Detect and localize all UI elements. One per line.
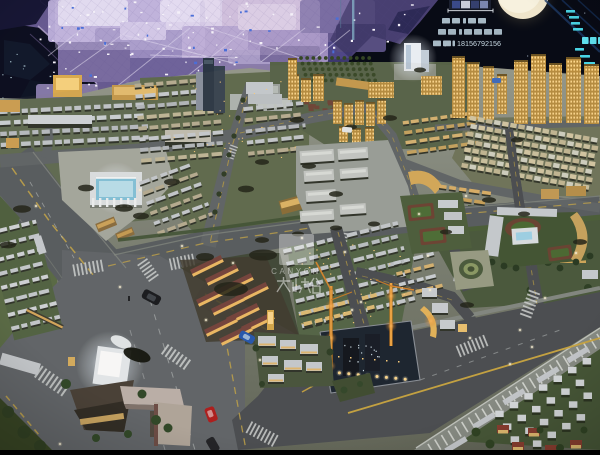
svg-text:CANYON: CANYON	[271, 267, 321, 276]
